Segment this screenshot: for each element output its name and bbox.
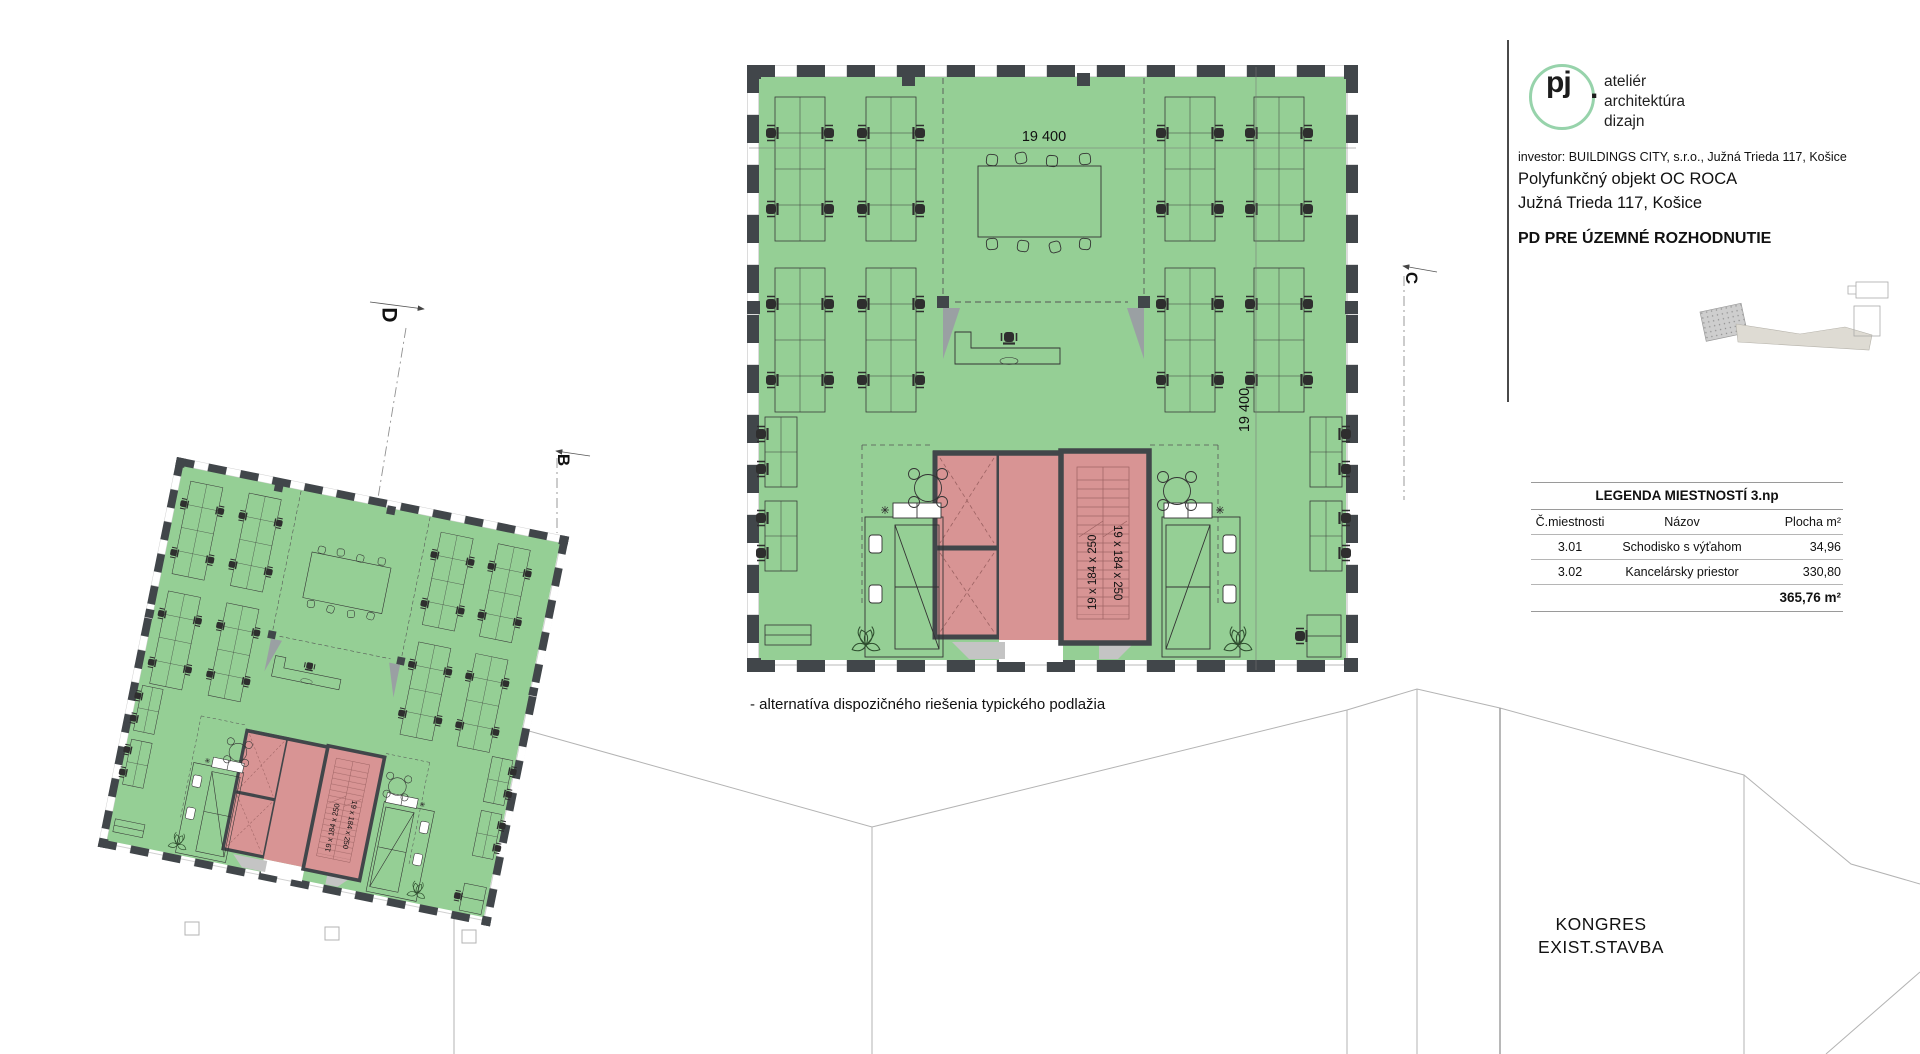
legend-table: LEGENDA MIESTNOSTÍ 3.np Č.miestnosti Náz… [1531,482,1843,612]
logo-line-2: architektúra [1604,92,1685,112]
legend-col-name: Názov [1609,515,1755,529]
room-name: Kancelársky priestor [1609,565,1755,579]
logo-wordmark: ateliér architektúra dizajn [1604,72,1685,132]
section-d-line [378,328,406,498]
legend-row: 3.02 Kancelársky priestor 330,80 [1531,560,1843,585]
drawing-sheet: 19 x 184 x 250 19 x 184 x 250 [0,0,1920,1054]
legend-total-row: 365,76 m² [1531,585,1843,612]
section-c-letter: C [1401,272,1421,284]
stage-title: PD PRE ÚZEMNÉ ROZHODNUTIE [1518,230,1771,248]
project-address: Južná Trieda 117, Košice [1518,194,1702,213]
floor-plan-small [98,457,569,926]
key-plan [1700,282,1888,350]
existing-building-label: KONGRES EXIST.STAVBA [1490,913,1712,959]
legend-total-area: 365,76 m² [1755,590,1843,605]
logo-line-3: dizajn [1604,112,1685,132]
room-name: Schodisko s výťahom [1609,540,1755,554]
legend-col-nr: Č.miestnosti [1531,515,1609,529]
section-b-letter: B [553,454,573,466]
legend-title: LEGENDA MIESTNOSTÍ 3.np [1531,482,1843,510]
logo-dot: . [1590,72,1598,106]
legend-row: 3.01 Schodisko s výťahom 34,96 [1531,535,1843,560]
existing-building-label-line2: EXIST.STAVBA [1490,936,1712,959]
dim-width-label: 19 400 [1022,129,1066,145]
logo-monogram: pj [1546,66,1571,100]
logo-line-1: ateliér [1604,72,1685,92]
room-number: 3.02 [1531,565,1609,579]
investor-line: investor: BUILDINGS CITY, s.r.o., Južná … [1518,150,1847,164]
keyplan-outline-1b [1848,286,1856,294]
room-area: 330,80 [1755,565,1843,579]
keyplan-outline-1 [1856,282,1888,298]
floor-plan-large: 19 400 19 400 [747,65,1358,672]
project-name: Polyfunkčný objekt OC ROCA [1518,170,1737,189]
dim-height-label: 19 400 [1237,388,1253,432]
keyplan-adjacent-building [1736,324,1872,350]
plan-caption: - alternatíva dispozičného riešenia typi… [750,696,1105,713]
legend-col-area: Plocha m² [1755,515,1843,529]
section-d-letter: D [377,307,401,322]
room-area: 34,96 [1755,540,1843,554]
legend-header-row: Č.miestnosti Názov Plocha m² [1531,510,1843,535]
existing-building-label-line1: KONGRES [1490,913,1712,936]
room-number: 3.01 [1531,540,1609,554]
